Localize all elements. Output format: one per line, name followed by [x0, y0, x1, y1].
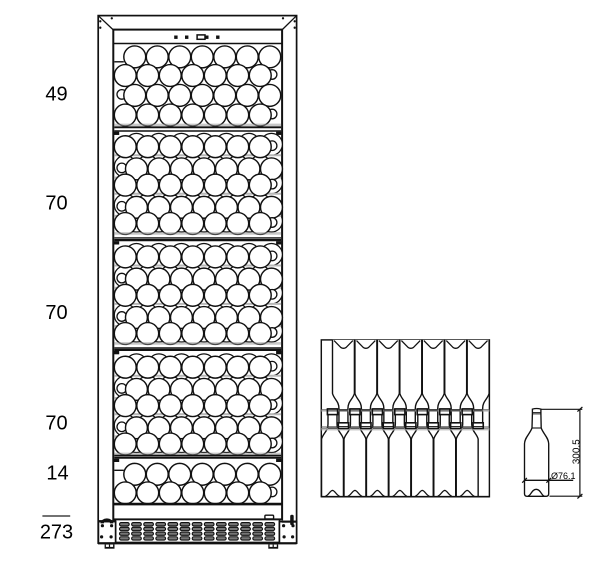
- svg-text:49: 49: [45, 83, 67, 105]
- svg-text:273: 273: [40, 522, 73, 544]
- svg-text:14: 14: [46, 463, 68, 485]
- svg-text:300.5: 300.5: [571, 439, 582, 464]
- svg-text:70: 70: [45, 302, 67, 324]
- svg-text:Ø76.1: Ø76.1: [551, 471, 576, 481]
- svg-text:70: 70: [45, 193, 67, 215]
- svg-text:70: 70: [45, 413, 67, 435]
